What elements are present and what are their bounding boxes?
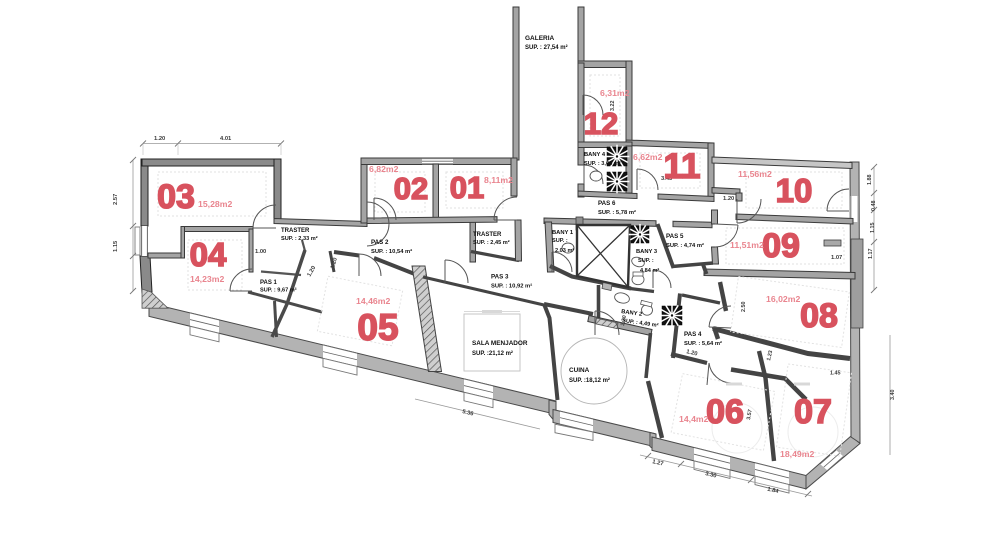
svg-text:SUP. : 5,64 m²: SUP. : 5,64 m²: [684, 340, 722, 347]
svg-text:2,03 m²: 2,03 m²: [555, 247, 574, 254]
svg-text:SUP. : 3,64 m²: SUP. : 3,64 m²: [584, 160, 621, 167]
svg-text:PAS 2: PAS 2: [371, 239, 389, 246]
svg-text:1.17: 1.17: [868, 249, 874, 260]
svg-text:05: 05: [357, 307, 398, 348]
svg-text:SUP. :: SUP. :: [638, 258, 654, 264]
svg-text:0.48: 0.48: [871, 201, 877, 212]
svg-text:TRASTER: TRASTER: [473, 232, 502, 238]
svg-text:04: 04: [190, 236, 227, 273]
svg-text:SUP. : 10,54 m²: SUP. : 10,54 m²: [371, 248, 412, 255]
svg-text:SUP. : 10,92 m²: SUP. : 10,92 m²: [491, 283, 532, 290]
svg-text:16,02m2: 16,02m2: [766, 294, 800, 304]
svg-text:BANY 4: BANY 4: [584, 152, 606, 158]
svg-text:09: 09: [762, 227, 800, 265]
svg-text:4.01: 4.01: [220, 136, 232, 142]
svg-text:BANY 1: BANY 1: [552, 230, 574, 236]
svg-text:1.00: 1.00: [255, 249, 266, 255]
svg-text:1.45: 1.45: [830, 371, 841, 377]
svg-text:1.88: 1.88: [867, 175, 873, 186]
svg-text:1.15: 1.15: [870, 223, 876, 234]
svg-text:11: 11: [664, 147, 701, 186]
svg-text:SUP. :: SUP. :: [552, 238, 568, 244]
svg-text:1.20: 1.20: [154, 136, 165, 142]
svg-text:1.07: 1.07: [831, 255, 842, 261]
svg-text:SUP. : 27,54 m²: SUP. : 27,54 m²: [525, 44, 568, 51]
svg-text:CUINA: CUINA: [569, 367, 590, 374]
svg-text:SUP. : 2,33 m²: SUP. : 2,33 m²: [281, 235, 318, 242]
svg-text:11,51m2: 11,51m2: [730, 240, 764, 250]
svg-text:PAS 3: PAS 3: [491, 274, 509, 281]
svg-text:06: 06: [706, 393, 744, 431]
svg-text:8,11m2: 8,11m2: [484, 175, 513, 185]
svg-text:2.50: 2.50: [741, 302, 747, 313]
svg-text:SUP. : 5,78 m²: SUP. : 5,78 m²: [598, 209, 636, 216]
svg-text:BANY 3: BANY 3: [636, 249, 658, 255]
svg-text:4,84 m²: 4,84 m²: [640, 267, 659, 274]
svg-text:SALA MENJADOR: SALA MENJADOR: [472, 340, 528, 347]
svg-text:14,23m2: 14,23m2: [190, 274, 224, 284]
svg-text:GALERIA: GALERIA: [525, 35, 555, 42]
svg-text:18,49m2: 18,49m2: [780, 449, 814, 459]
svg-text:6,62m2: 6,62m2: [633, 152, 663, 162]
svg-text:SUP. :21,12 m²: SUP. :21,12 m²: [472, 350, 513, 357]
svg-text:15,28m2: 15,28m2: [198, 199, 232, 209]
svg-text:1.20: 1.20: [723, 196, 734, 202]
svg-text:12: 12: [584, 106, 618, 141]
svg-text:10: 10: [776, 172, 813, 209]
svg-text:PAS 6: PAS 6: [598, 200, 616, 207]
svg-text:14,46m2: 14,46m2: [356, 296, 390, 306]
svg-text:03: 03: [157, 178, 195, 216]
svg-text:SUP. : 2,45 m²: SUP. : 2,45 m²: [473, 239, 510, 246]
svg-text:PAS 4: PAS 4: [684, 331, 702, 338]
svg-text:TRASTER: TRASTER: [281, 228, 310, 234]
svg-text:07: 07: [794, 393, 832, 431]
svg-text:11,56m2: 11,56m2: [738, 169, 772, 179]
svg-text:2.57: 2.57: [113, 194, 119, 205]
svg-text:SUP. : 4,74 m²: SUP. : 4,74 m²: [666, 242, 704, 249]
svg-text:SUP. : 9,67 m²: SUP. : 9,67 m²: [260, 287, 297, 294]
svg-text:08: 08: [800, 297, 838, 335]
svg-text:SUP. :18,12 m²: SUP. :18,12 m²: [569, 377, 610, 384]
svg-text:6,31m2: 6,31m2: [600, 88, 630, 98]
svg-text:1.15: 1.15: [113, 240, 119, 252]
svg-text:PAS 1: PAS 1: [260, 280, 278, 286]
svg-text:01: 01: [450, 170, 484, 205]
svg-text:02: 02: [394, 171, 428, 206]
svg-text:6,82m2: 6,82m2: [369, 164, 399, 174]
svg-text:3.40: 3.40: [890, 390, 896, 401]
svg-text:14,4m2: 14,4m2: [679, 414, 709, 424]
svg-text:PAS 5: PAS 5: [666, 233, 684, 240]
